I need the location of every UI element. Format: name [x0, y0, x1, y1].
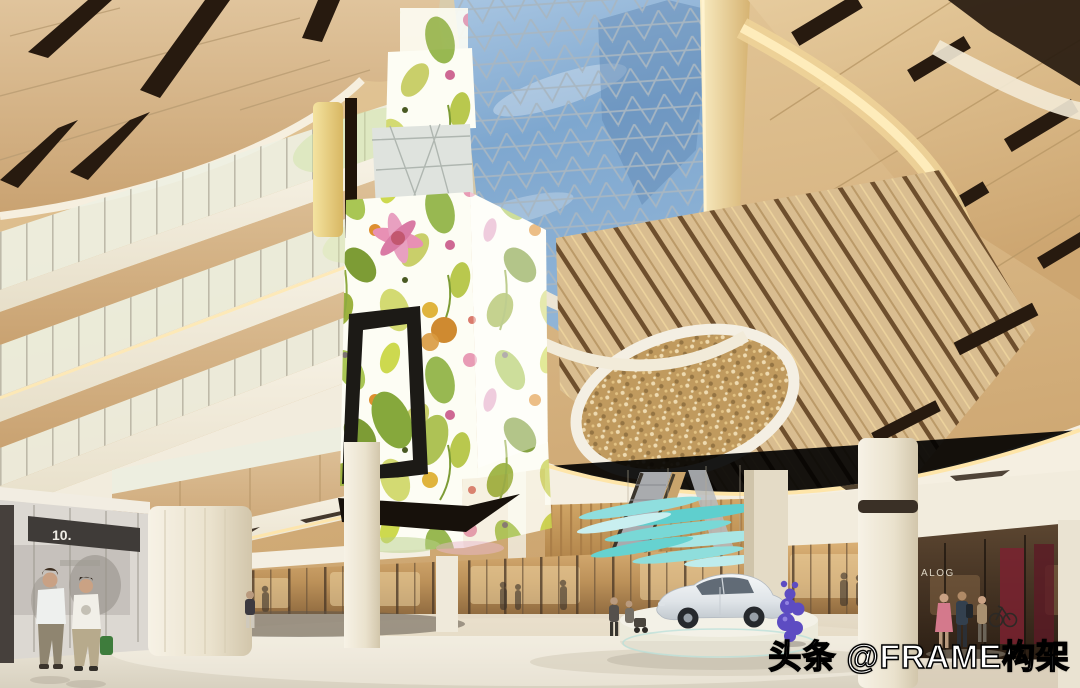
- backpack: [966, 604, 973, 618]
- wheel-hub: [750, 613, 759, 622]
- wheel-hub: [684, 614, 693, 623]
- watermark: 头条 @FRAME构架: [768, 630, 1070, 678]
- mall-atrium-rendering: 10. ALOG: [0, 0, 1080, 688]
- white-column: [344, 442, 380, 648]
- cream-pillar-left: [148, 506, 252, 656]
- dark-edge-strip: [0, 505, 14, 663]
- green-shopping-bag: [100, 636, 113, 655]
- column-dark-collar: [858, 500, 918, 513]
- stroller: [634, 618, 646, 627]
- headlight: [658, 602, 665, 606]
- storefront-sign-10: 10.: [52, 527, 71, 543]
- storefront-sign-alog: ALOG: [921, 568, 955, 579]
- pink-dress-figure: [935, 603, 953, 632]
- balloon-highlight: [785, 601, 789, 605]
- atrium-scene: 10. ALOG: [0, 0, 1080, 688]
- slim-white-column: [436, 556, 458, 632]
- balloon-highlight: [783, 617, 788, 622]
- banner: [1034, 544, 1054, 644]
- lit-yellow-column: [313, 102, 343, 237]
